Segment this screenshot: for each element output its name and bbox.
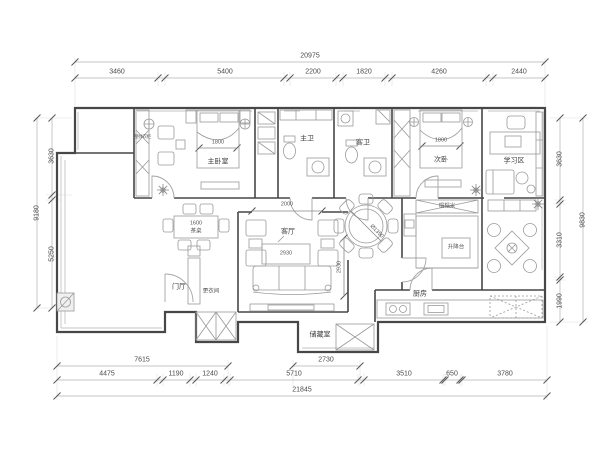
ceiling-lamp-icon xyxy=(464,118,473,127)
room-label-kitchen: 厨房 xyxy=(413,291,427,298)
dining-furniture xyxy=(334,194,398,258)
furn-dim-tea-table: 1600 xyxy=(190,221,202,227)
armchair xyxy=(246,220,266,236)
living-room-furniture xyxy=(246,211,344,311)
master-bath-furniture xyxy=(280,110,332,176)
bedroom-bench xyxy=(201,182,239,189)
plant-icon xyxy=(470,184,482,196)
furniture-layer xyxy=(57,110,544,350)
room-label-master-bath: 主卫 xyxy=(300,136,314,143)
dim-top-seg-5: 2440 xyxy=(511,69,527,76)
room-label-second-bedroom: 次卧 xyxy=(434,157,448,164)
leisure-area-furniture xyxy=(488,198,545,273)
tea-area-furniture xyxy=(163,204,229,250)
dim-top-seg-2: 2200 xyxy=(305,69,321,76)
dim-bottom-main-3: 5710 xyxy=(286,371,302,378)
master-bedroom-furniture xyxy=(136,110,275,196)
dim-top-seg-4: 4260 xyxy=(431,69,447,76)
dim-left-seg-1: 5250 xyxy=(49,246,56,262)
room-label-tatami: 榻榻米 xyxy=(439,204,456,210)
dim-bottom-main-2: 1240 xyxy=(202,371,218,378)
dim-right-seg-0: 3630 xyxy=(557,151,564,167)
floor-plan-canvas: 20975 3460 5400 2200 1820 4260 2440 7615… xyxy=(0,0,600,450)
armchair xyxy=(318,250,338,266)
kitchen-furniture xyxy=(377,296,543,318)
dim-top-total: 20975 xyxy=(300,53,319,60)
sofa xyxy=(253,266,331,290)
shoe-cabinet xyxy=(188,258,200,304)
dim-bottom-main-6: 3780 xyxy=(497,371,513,378)
dim-bottom-upper-0: 7615 xyxy=(134,357,150,364)
ceiling-lamp-icon xyxy=(144,119,154,129)
dim-bottom-main-5: 650 xyxy=(446,371,458,378)
furn-dim-master-bed: 1800 xyxy=(212,140,224,146)
desk-chair xyxy=(507,116,525,129)
room-label-foyer: 门厅 xyxy=(172,284,186,291)
dim-right-total: 9830 xyxy=(580,212,587,228)
furn-dim-living-opening: 2000 xyxy=(281,202,293,208)
ceiling-lamp-icon xyxy=(410,118,419,127)
bedroom-bench xyxy=(425,180,461,187)
washing-machine xyxy=(338,111,353,126)
dim-bottom-main-1: 1190 xyxy=(168,371,183,378)
armchair xyxy=(158,126,174,139)
master-wardrobe xyxy=(136,110,149,196)
balcony-furniture xyxy=(57,184,169,311)
dim-top-seg-3: 1820 xyxy=(356,69,372,76)
dim-left-seg-0: 3630 xyxy=(49,148,56,164)
exterior-walls xyxy=(57,108,545,352)
extension-lines-layer xyxy=(33,58,588,400)
room-label-wardrobe: 整体衣柜 xyxy=(135,135,151,140)
dim-right-seg-2: 1990 xyxy=(557,293,564,309)
armchair xyxy=(318,220,338,236)
study-sofa xyxy=(486,170,514,194)
room-label-master-bedroom: 主卧室 xyxy=(208,159,229,166)
dimension-lines-layer xyxy=(37,62,583,396)
furn-dim-living-depth: 2930 xyxy=(337,261,343,273)
label-lift-table: 升降台 xyxy=(448,245,465,251)
label-tea-table: 茶桌 xyxy=(190,229,201,235)
side-cabinet xyxy=(488,200,536,211)
dim-top-seg-0: 3460 xyxy=(109,69,125,76)
dim-top-seg-1: 5400 xyxy=(217,69,233,76)
room-label-guest-bath: 客卫 xyxy=(356,140,370,147)
dim-right-seg-1: 3310 xyxy=(557,232,564,248)
doors-layer xyxy=(152,176,438,302)
storage-furniture xyxy=(336,324,374,350)
ceiling-lamp-icon xyxy=(240,119,250,129)
furn-dim-coffee-table: 2930 xyxy=(280,251,292,257)
room-label-storage: 储藏室 xyxy=(310,332,331,339)
armchair xyxy=(158,152,174,165)
dim-left-total: 9180 xyxy=(34,205,41,221)
study-furniture xyxy=(486,112,543,196)
furn-dim-second-bed: 1800 xyxy=(435,138,447,144)
plant-icon xyxy=(157,184,169,196)
room-label-living: 客厅 xyxy=(281,229,295,236)
dim-bottom-main-4: 3510 xyxy=(396,371,412,378)
desk xyxy=(490,132,540,154)
room-label-study: 学习区 xyxy=(504,158,525,165)
floor-plan-drawing xyxy=(0,0,600,450)
toilet xyxy=(284,136,295,142)
dim-bottom-upper-1: 2730 xyxy=(318,357,334,364)
dim-bottom-total: 21845 xyxy=(292,387,311,394)
dim-bottom-main-0: 4475 xyxy=(99,371,115,378)
tatami-platform xyxy=(416,216,478,268)
room-label-dressing: 更衣间 xyxy=(203,289,220,295)
